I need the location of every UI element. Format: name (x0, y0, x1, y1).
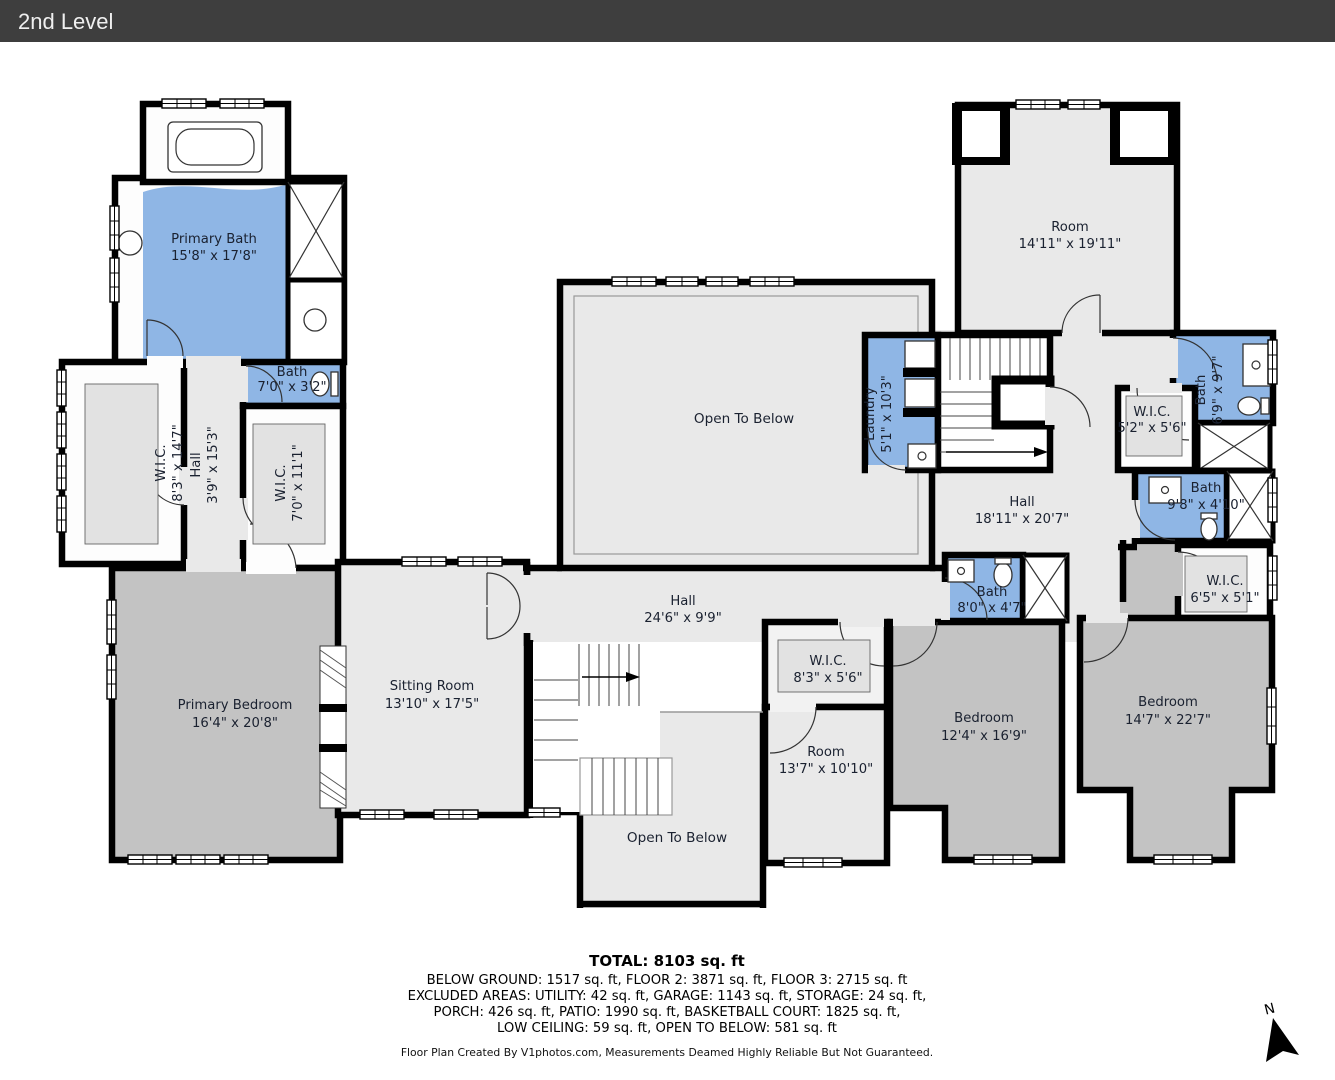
room-label-bath-69: Bath (1194, 375, 1209, 406)
floor-plan-page: 2nd Level (0, 0, 1335, 1080)
room-dims-bath-small: 7'0" x 3'2" (257, 380, 326, 395)
stair-shaft (996, 380, 1050, 425)
room-label-open-below-top: Open To Below (694, 411, 794, 427)
room-dims-wic-left2: 7'0" x 11'1" (291, 444, 306, 522)
room-dims-wic-83: 8'3" x 5'6" (793, 671, 862, 686)
room-label-room-top: Room (1051, 220, 1089, 235)
summary-line3: PORCH: 426 sq. ft, PATIO: 1990 sq. ft, B… (434, 1005, 901, 1020)
room-label-wic-left: W.I.C. (154, 444, 169, 481)
room-dims-bath-80: 8'0" x 4'7" (957, 601, 1026, 616)
room-dims-hall-left: 3'9" x 15'3" (206, 426, 221, 504)
room-dims-wic-left: 8'3" x 14'7" (171, 424, 186, 502)
room-label-hall-main: Hall (1009, 495, 1034, 510)
room-label-room-bottom: Room (807, 745, 845, 760)
summary-total: TOTAL: 8103 sq. ft (589, 952, 745, 970)
room-label-bath-small: Bath (277, 365, 308, 380)
room-dims-laundry: 5'1" x 10'3" (880, 375, 895, 453)
room-label-hall-left: Hall (189, 452, 204, 477)
room-label-bath-98: Bath (1191, 481, 1222, 496)
room-label-sitting-room: Sitting Room (390, 679, 475, 694)
primary-bedroom-room (112, 568, 340, 860)
summary-line1: BELOW GROUND: 1517 sq. ft, FLOOR 2: 3871… (427, 973, 908, 988)
vanity-80 (948, 560, 974, 582)
room-label-hall-bottom: Hall (670, 594, 695, 609)
north-arrow-icon (1266, 1018, 1299, 1062)
page-title: 2nd Level (18, 9, 113, 34)
room-dims-room-top: 14'11" x 19'11" (1019, 237, 1122, 252)
sink-left (118, 231, 142, 255)
vestibule-floor (1120, 545, 1178, 620)
room-label-open-below-bottom: Open To Below (627, 830, 727, 846)
room-dims-wic-65: 6'5" x 5'1" (1190, 591, 1259, 606)
header-bar: 2nd Level (0, 0, 1335, 42)
room-label-bedroom-right: Bedroom (1138, 695, 1198, 710)
toilet-98 (1201, 518, 1217, 540)
credit-line: Floor Plan Created By V1photos.com, Meas… (401, 1046, 933, 1059)
room-dims-hall-bottom: 24'6" x 9'9" (644, 611, 722, 626)
room-label-laundry: Laundry (863, 387, 878, 441)
room-label-bedroom-mid: Bedroom (954, 711, 1014, 726)
toilet-80 (994, 563, 1012, 587)
north-arrow: N (1263, 1001, 1299, 1062)
room-label-wic-65: W.I.C. (1206, 574, 1243, 589)
vanity-69 (1243, 344, 1270, 386)
room-dims-sitting-room: 13'10" x 17'5" (385, 697, 479, 712)
room-dims-bath-69: 6'9" x 9'7" (1211, 355, 1226, 424)
room-dims-room-bottom: 13'7" x 10'10" (779, 762, 873, 777)
room-dims-bath-98: 9'8" x 4'10" (1167, 498, 1245, 513)
room-label-primary-bath: Primary Bath (171, 232, 257, 247)
room-dims-bedroom-right: 14'7" x 22'7" (1125, 713, 1211, 728)
sink-nook (304, 309, 326, 331)
room-label-bath-80: Bath (977, 585, 1008, 600)
room-label-wic-83: W.I.C. (809, 654, 846, 669)
room-dims-bedroom-mid: 12'4" x 16'9" (941, 729, 1027, 744)
room-dims-primary-bedroom: 16'4" x 20'8" (192, 716, 278, 731)
fireplace (319, 646, 347, 808)
room-label-wic-52: W.I.C. (1133, 405, 1170, 420)
room-label-primary-bedroom: Primary Bedroom (178, 698, 293, 713)
summary-line4: LOW CEILING: 59 sq. ft, OPEN TO BELOW: 5… (497, 1021, 837, 1036)
room-bottom-room (765, 707, 887, 863)
primary-bath-wet-area (143, 184, 288, 359)
toilet-69 (1238, 397, 1260, 415)
room-dims-hall-main: 18'11" x 20'7" (975, 512, 1069, 527)
summary-block: TOTAL: 8103 sq. ft BELOW GROUND: 1517 sq… (401, 952, 933, 1059)
north-label: N (1263, 1001, 1277, 1019)
room-label-wic-left2: W.I.C. (274, 464, 289, 501)
room-dims-wic-52: 5'2" x 5'6" (1117, 421, 1186, 436)
summary-line2: EXCLUDED AREAS: UTILITY: 42 sq. ft, GARA… (408, 989, 927, 1004)
washer-dryer (903, 341, 938, 468)
room-dims-primary-bath: 15'8" x 17'8" (171, 249, 257, 264)
